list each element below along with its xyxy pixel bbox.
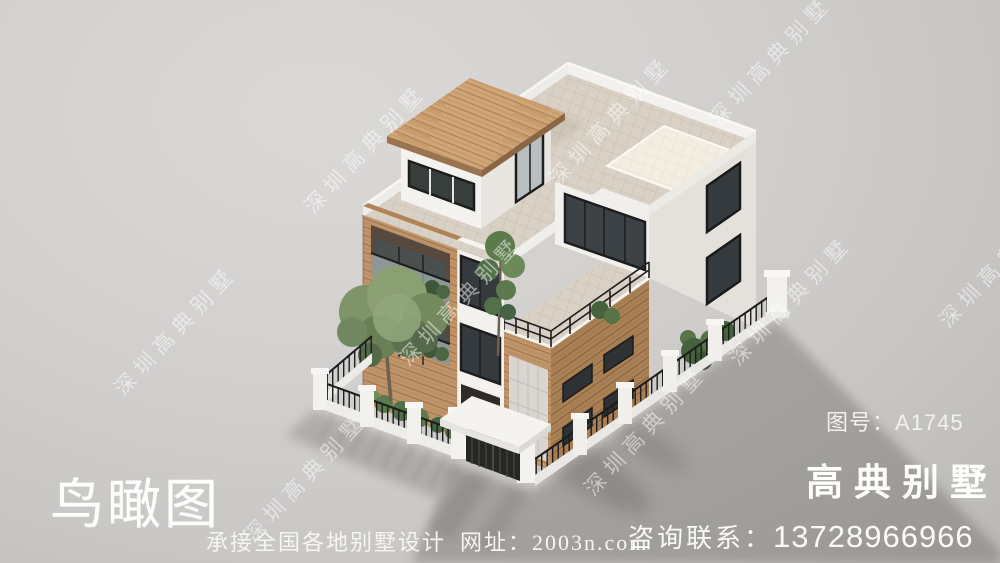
tagline-website: 网址：2003n.com bbox=[460, 530, 648, 555]
drawing-number-label: 图号： bbox=[826, 410, 895, 435]
contact-label: 咨询联系： bbox=[628, 524, 773, 553]
contact-info: 咨询联系：13728966966 bbox=[628, 518, 974, 555]
drawing-number-value: A1745 bbox=[895, 410, 964, 435]
contact-number: 13728966966 bbox=[773, 519, 974, 554]
tagline: 承接全国各地别墅设计网址：2003n.com bbox=[206, 525, 648, 557]
drawing-number: 图号：A1745 bbox=[826, 405, 964, 437]
tagline-service: 承接全国各地别墅设计 bbox=[206, 530, 446, 555]
poster: 深圳高典别墅 深圳高典别墅 深圳高典别墅 深圳高典别墅 深圳高典别墅 深圳高典别… bbox=[0, 0, 1000, 563]
brand-name: 高典别墅 bbox=[806, 452, 998, 506]
page-title: 鸟瞰图 bbox=[50, 460, 221, 539]
